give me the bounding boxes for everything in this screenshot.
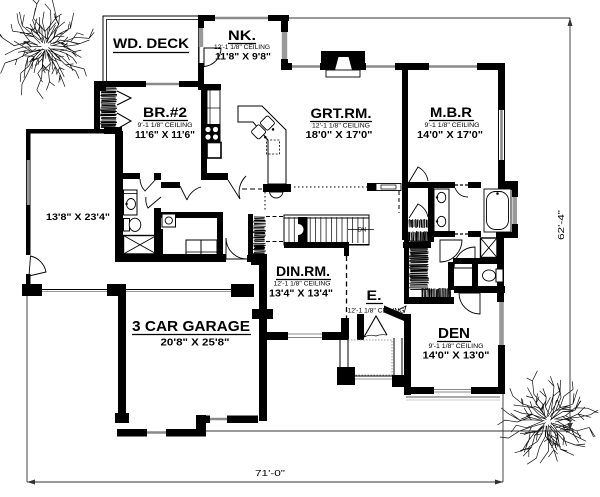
svg-text:18'0" X 17'0": 18'0" X 17'0": [306, 130, 373, 141]
svg-text:DN: DN: [358, 228, 367, 234]
svg-text:M.B.R: M.B.R: [430, 104, 472, 120]
svg-text:12'-1 1/8" CEILING: 12'-1 1/8" CEILING: [274, 281, 331, 288]
svg-text:14'0" X 13'0": 14'0" X 13'0": [423, 351, 490, 362]
svg-text:13'8" X 23'4": 13'8" X 23'4": [46, 212, 110, 222]
svg-text:20'8" X 25'8": 20'8" X 25'8": [161, 338, 230, 349]
svg-text:GRT.RM.: GRT.RM.: [311, 105, 372, 121]
svg-text:9'-1 1/8" CEILING: 9'-1 1/8" CEILING: [138, 122, 193, 129]
svg-text:9'-1 1/8" CEILING: 9'-1 1/8" CEILING: [425, 122, 480, 129]
svg-text:WD. DECK: WD. DECK: [113, 36, 189, 51]
svg-text:NK.: NK.: [228, 27, 256, 43]
svg-text:DIN.RM.: DIN.RM.: [276, 263, 330, 279]
svg-text:E.: E.: [367, 287, 382, 303]
svg-text:14'0" X 17'0": 14'0" X 17'0": [417, 130, 483, 141]
svg-text:13'4" X 13'4": 13'4" X 13'4": [269, 289, 333, 300]
svg-text:12'-1 1/8" CEILING: 12'-1 1/8" CEILING: [312, 123, 370, 130]
svg-text:62'-4": 62'-4": [557, 210, 566, 240]
svg-text:9'-1 1/8" CEILING: 9'-1 1/8" CEILING: [429, 343, 484, 350]
svg-text:12'-1 1/8" CEILING: 12'-1 1/8" CEILING: [214, 45, 270, 51]
svg-text:DEN: DEN: [438, 325, 470, 342]
svg-text:BR.#2: BR.#2: [143, 104, 187, 120]
svg-text:11'6" X 11'6": 11'6" X 11'6": [135, 130, 195, 141]
svg-text:3 CAR GARAGE: 3 CAR GARAGE: [132, 318, 250, 335]
svg-text:11'8" X 9'8": 11'8" X 9'8": [215, 52, 271, 63]
svg-text:71'-0": 71'-0": [255, 469, 285, 478]
